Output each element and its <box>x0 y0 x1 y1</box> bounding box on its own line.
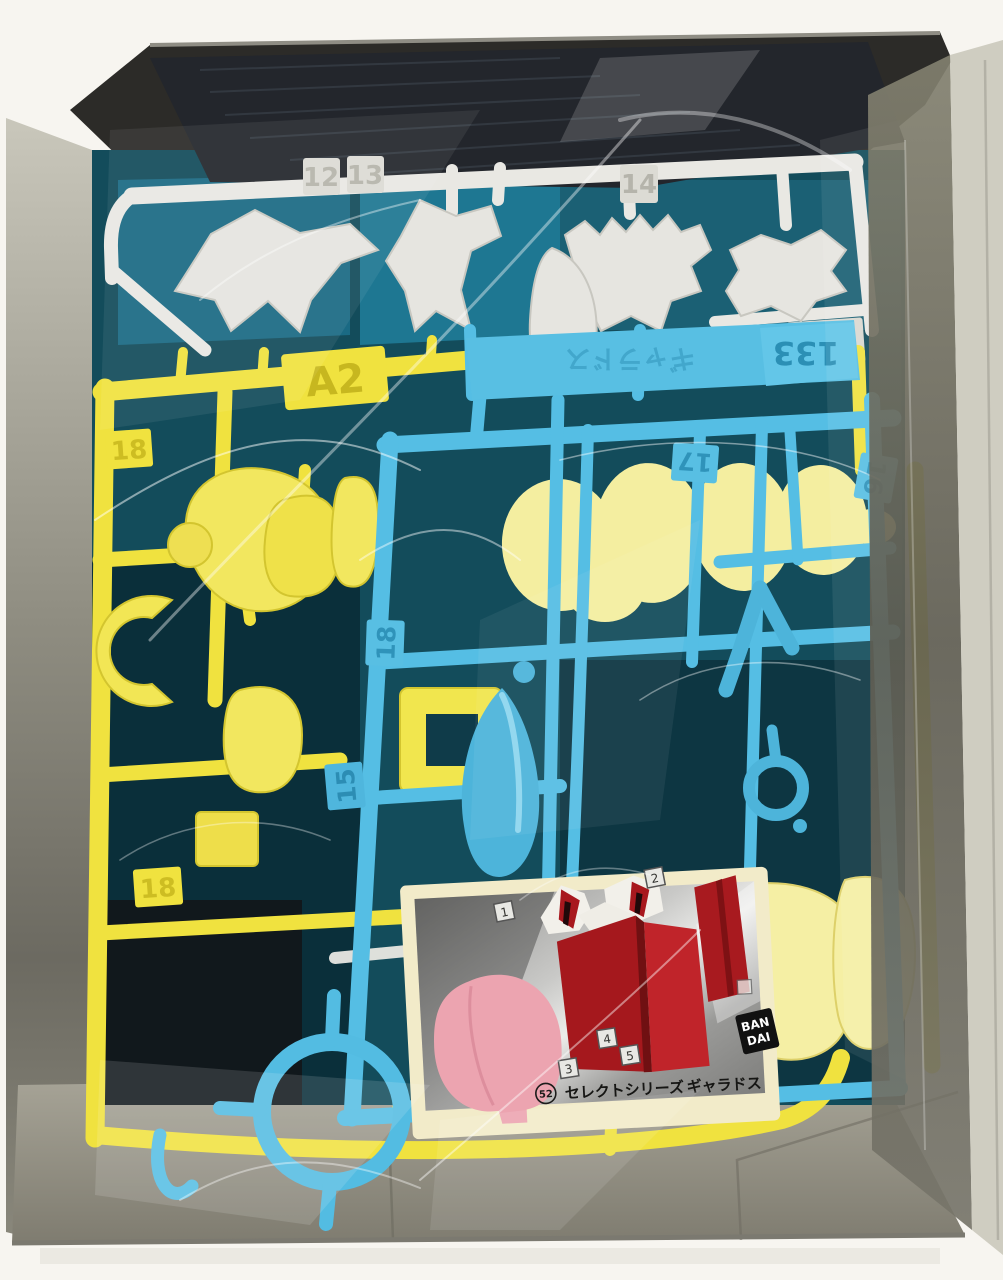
blue-label-18: 18 <box>371 625 401 661</box>
boxed-model-kit-photo: 12 13 14 1A <box>0 0 1003 1280</box>
part-marker-2: 2 <box>644 867 665 888</box>
yellow-ball-joint <box>168 523 212 567</box>
instruction-card: 1 2 3 4 5 52 セレクトシリーズ <box>399 861 783 1139</box>
part-marker-3: 3 <box>558 1058 579 1079</box>
blue-label-17: 17 <box>677 446 714 477</box>
part-marker-4: 4 <box>597 1028 618 1049</box>
blue-label-15: 15 <box>331 767 363 804</box>
sprue-label-14: 14 <box>621 170 657 200</box>
yellow-label-18-upper: 18 <box>110 435 148 467</box>
part-marker-1: 1 <box>494 901 515 922</box>
yellow-label-18-lower: 18 <box>139 873 177 905</box>
part-marker-5: 5 <box>620 1045 641 1066</box>
card-circled-number: 52 <box>539 1089 554 1101</box>
blue-mold-name: ギャラドス <box>565 343 695 373</box>
part-marker-small <box>737 980 752 995</box>
left-wall <box>6 118 92 1238</box>
